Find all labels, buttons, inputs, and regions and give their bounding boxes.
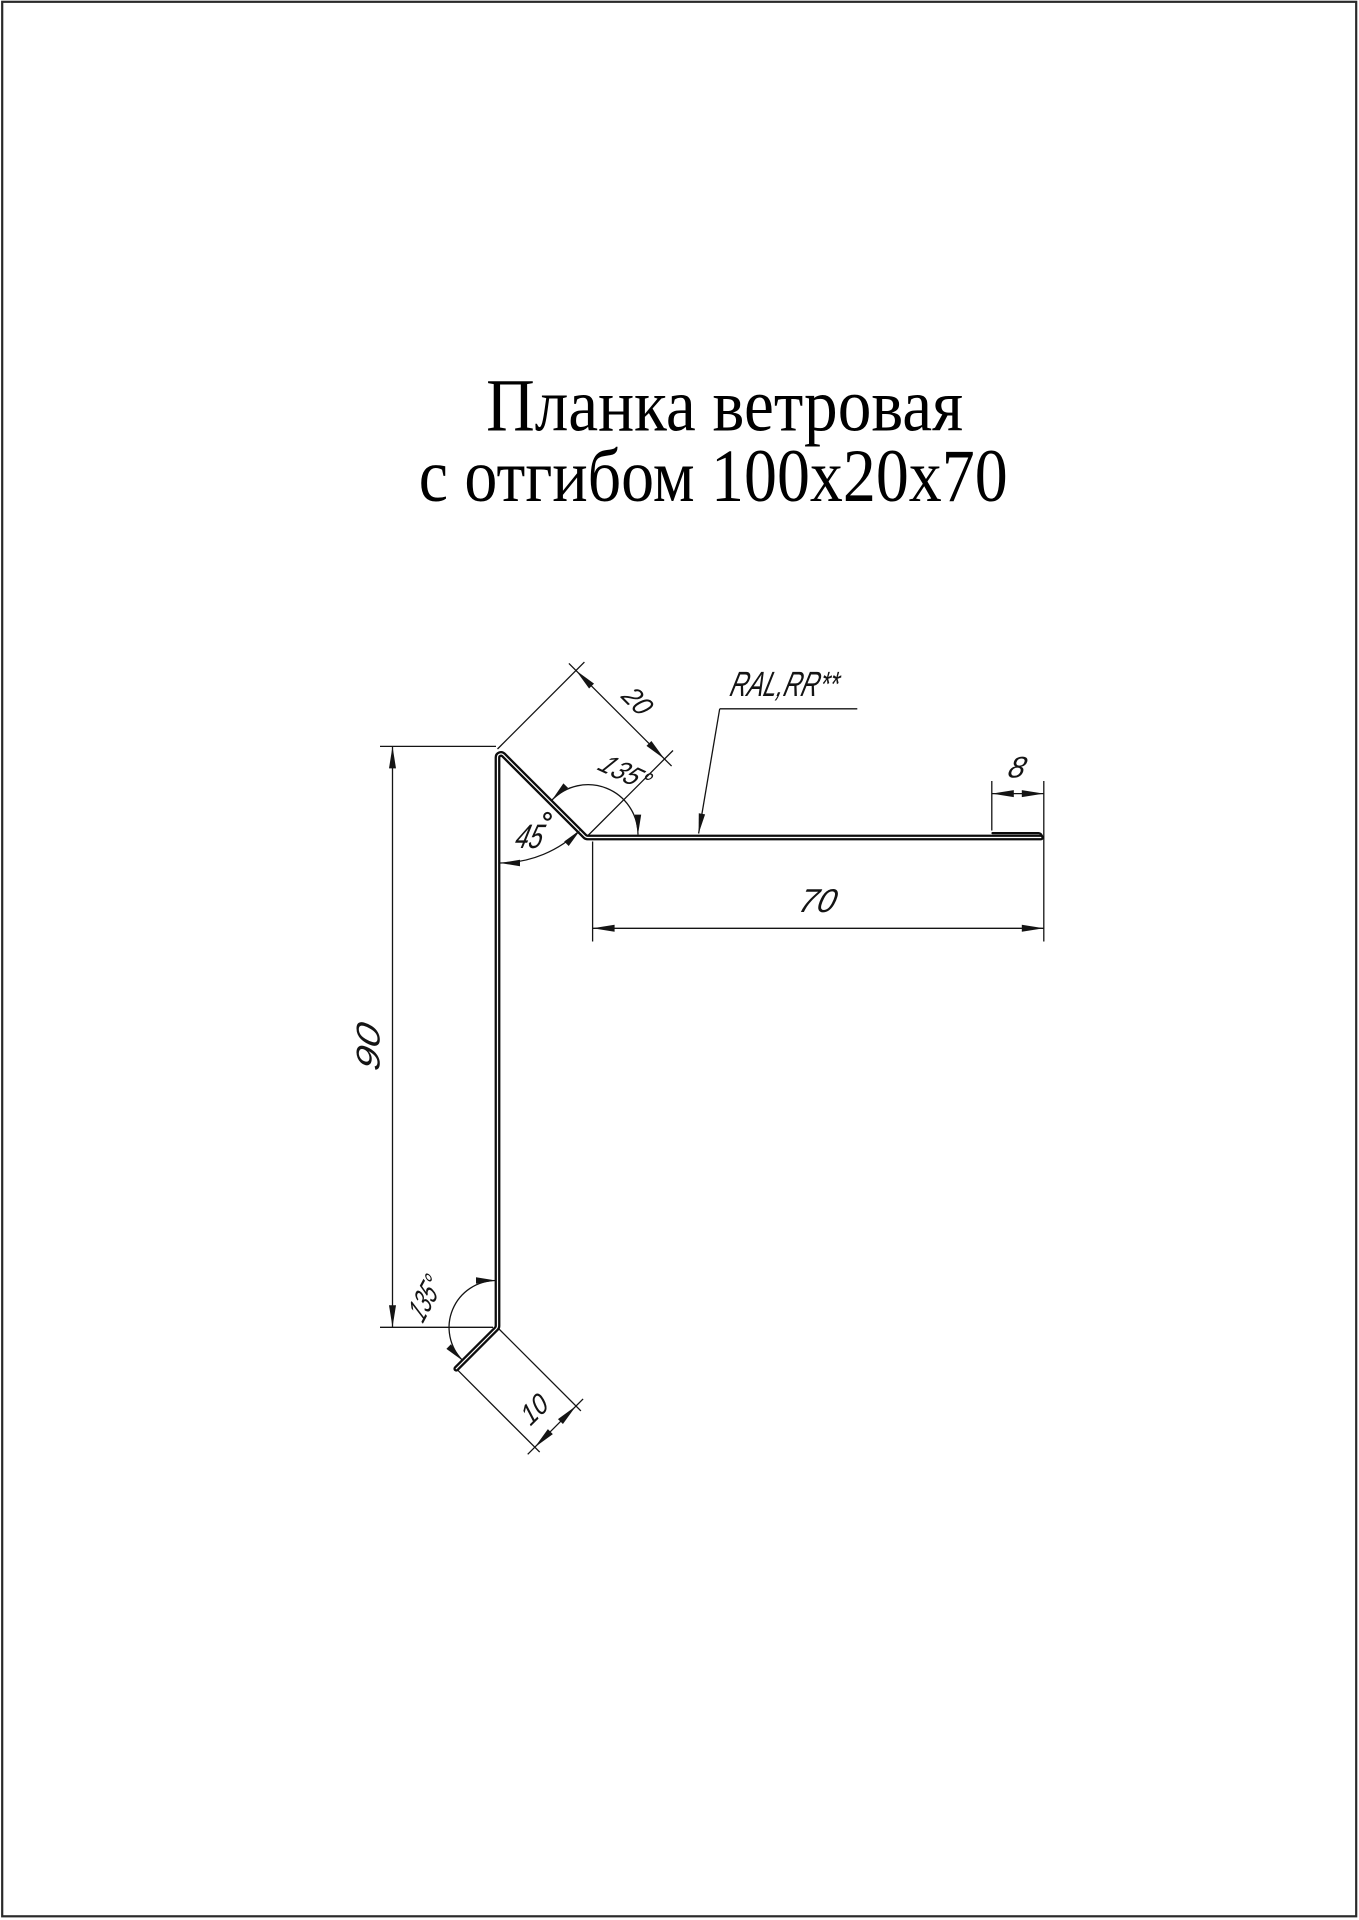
svg-text:с отгибом 100х20х70: с отгибом 100х20х70 [419, 435, 1008, 518]
svg-text:RAL,RR**: RAL,RR** [726, 664, 844, 703]
